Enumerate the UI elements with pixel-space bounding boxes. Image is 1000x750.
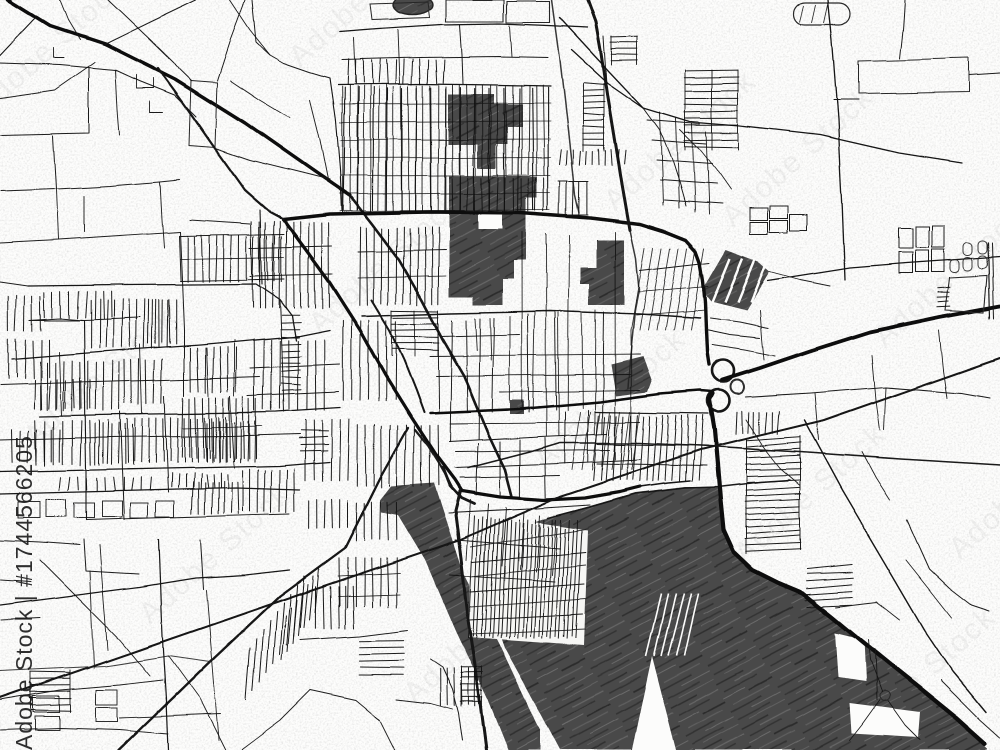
svg-text:Adobe Stock | #1744566205: Adobe Stock | #1744566205 [11, 435, 37, 750]
